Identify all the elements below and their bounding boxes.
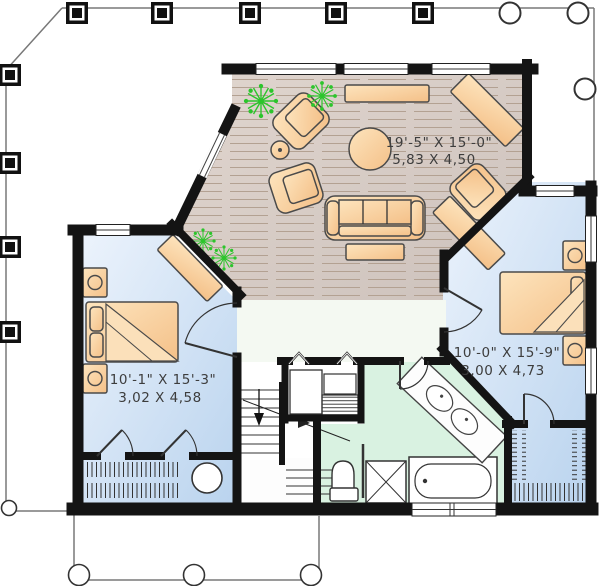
right-bedroom-dim-metric: 3,00 X 4,73 [461,363,544,379]
left-bedroom-dim-imperial: 10'-1" X 15'-3" [110,372,216,388]
round-post-icon [500,3,521,24]
sofa [325,196,425,240]
round-table [349,128,391,170]
window [536,186,574,197]
plant-icon [245,85,278,118]
floor-plan-drawing: 19'-5" X 15'-0" 5,83 X 4,50 10'-1" X 15'… [0,0,600,586]
stair-landing-floor [239,458,315,505]
living-room-dim-imperial: 19'-5" X 15'-0" [386,135,492,151]
window [432,64,490,75]
window [412,503,496,516]
square-post-icon [66,2,88,24]
closet-rod-clothes [510,430,526,482]
bed [500,272,586,334]
left-bedroom-dim-metric: 3,02 X 4,58 [118,390,201,406]
nightstand [563,241,587,270]
bathtub [409,457,497,504]
nightstand [83,268,107,297]
vented-unit [322,395,358,415]
water-heater [192,463,222,493]
console-table [345,85,429,102]
window [256,64,336,75]
bed [86,302,178,362]
right-bedroom-dim-imperial: 10'-0" X 15'-9" [454,345,560,361]
coffee-table [346,244,404,260]
nightstand [83,364,107,393]
furnace [290,370,322,414]
equipment-box [324,374,356,394]
closet-rod-clothes [512,482,588,501]
closet-rod-clothes [86,462,178,498]
window [586,348,597,394]
window [344,64,408,75]
nightstand [563,336,587,365]
utility-closet [288,364,358,416]
hall-floor [237,300,446,362]
plant-icon [308,82,337,111]
shower [366,461,406,503]
living-room-dim-metric: 5,83 X 4,50 [392,152,475,168]
window [586,216,597,262]
floor-plan: 19'-5" X 15'-0" 5,83 X 4,50 10'-1" X 15'… [0,0,600,586]
window [96,225,130,236]
